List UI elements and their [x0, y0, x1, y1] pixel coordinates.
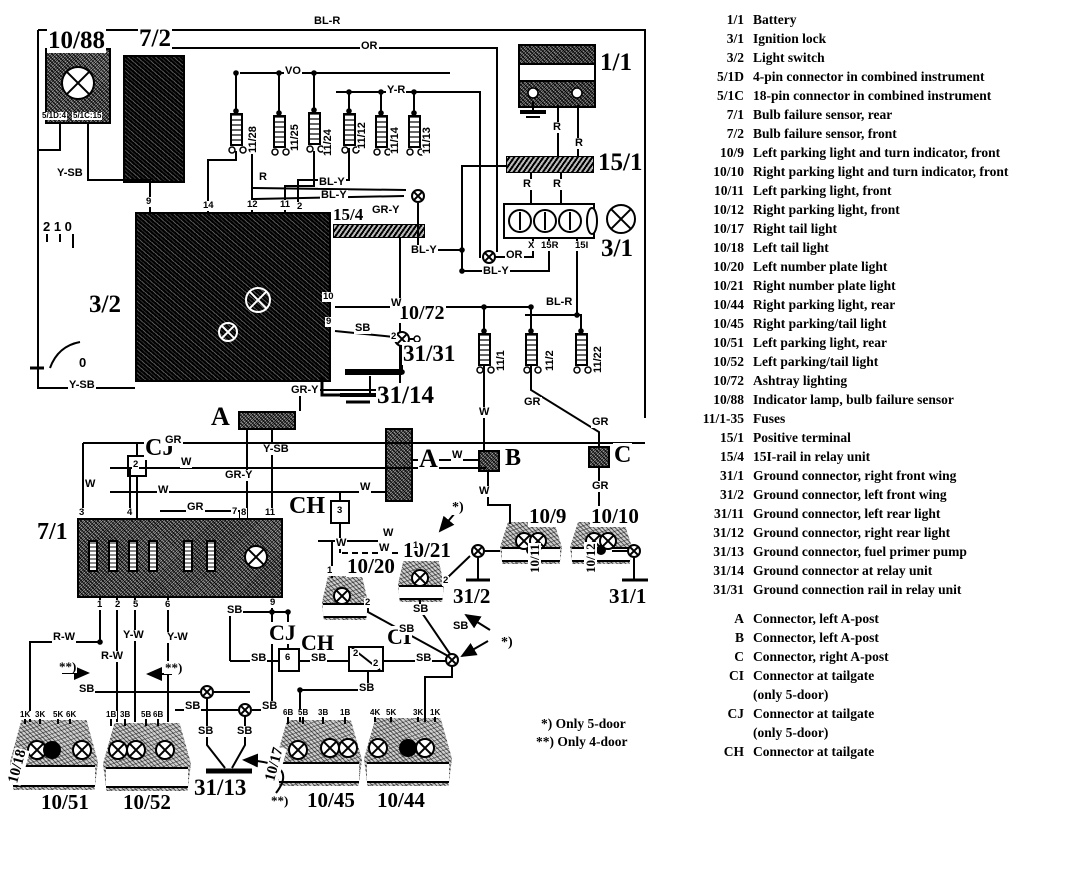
wire-label: BL-Y	[320, 190, 348, 201]
legend-desc: Connector, left A-post	[753, 628, 1066, 647]
terminal-label: 3B	[119, 711, 131, 719]
legend-row: 5/1D4-pin connector in combined instrume…	[694, 67, 1066, 86]
component-label: **)	[164, 661, 183, 674]
wire-label: OR	[360, 41, 379, 52]
fuse-symbol	[478, 333, 491, 366]
wire-label: GR	[591, 481, 610, 492]
legend-row: 10/11Left parking light, front	[694, 181, 1066, 200]
legend-code: CH	[694, 742, 753, 761]
wire-label: Y-W	[122, 630, 145, 641]
wire-label: GR-Y	[290, 385, 320, 396]
sensor-fuse-slot	[108, 540, 118, 572]
legend-code: 10/44	[694, 295, 753, 314]
terminal-label: 2	[352, 649, 359, 659]
legend-code: 31/13	[694, 542, 753, 561]
terminal-label: 7	[231, 507, 238, 517]
legend-code: 10/17	[694, 219, 753, 238]
legend-code: 10/52	[694, 352, 753, 371]
legend-desc: Bulb failure sensor, front	[753, 124, 1066, 143]
wire-label: GR-Y	[224, 470, 254, 481]
legend-code: CI	[694, 666, 753, 704]
terminal-label: 3B	[317, 709, 329, 717]
terminal-label: 6B	[282, 709, 294, 717]
legend-row: 15/415I-rail in relay unit	[694, 447, 1066, 466]
component-label: *)	[500, 636, 514, 650]
terminal-label: 2	[114, 600, 121, 610]
legend-row: 7/1Bulb failure sensor, rear	[694, 105, 1066, 124]
legend-code: 10/11	[694, 181, 753, 200]
wire-label: W	[335, 538, 347, 549]
legend-row: 31/2Ground connector, left front wing	[694, 485, 1066, 504]
wire-label: 11/13	[422, 126, 433, 155]
component-label: 31/14	[376, 383, 435, 408]
wire-label: Y-SB	[68, 380, 96, 391]
legend-desc: Ground connector, left rear light	[753, 504, 1066, 523]
wire-label: Y-W	[166, 632, 189, 643]
legend-desc: Ground connector, left front wing	[753, 485, 1066, 504]
legend-row: 10/12Right parking light, front	[694, 200, 1066, 219]
legend-code: 11/1-35	[694, 409, 753, 428]
terminal-label: 5	[132, 600, 139, 610]
legend-desc: Ground connector, right front wing	[753, 466, 1066, 485]
terminal-label: 9	[145, 197, 152, 207]
sensor-fuse-slot	[148, 540, 158, 572]
connector-b-box	[478, 450, 500, 472]
terminal-label: 1	[412, 541, 419, 551]
wire-label: R	[574, 138, 584, 149]
wire-label: 11/22	[593, 345, 604, 374]
terminal-label: 6	[284, 653, 291, 663]
component-label: 10/20	[346, 556, 396, 577]
wire-label: W	[478, 486, 490, 497]
wire-label: R	[258, 172, 268, 183]
legend-row: CConnector, right A-post	[694, 647, 1066, 666]
wire-label: SB	[197, 726, 214, 737]
component-label: 10/44	[376, 790, 426, 811]
fuse-symbol	[575, 333, 588, 366]
wire-label: BL-R	[545, 297, 573, 308]
terminal-label: 4	[126, 508, 133, 518]
component-label: **)	[58, 660, 77, 673]
ignition-lock-symbol	[503, 203, 595, 239]
legend-code: 10/12	[694, 200, 753, 219]
legend-code: 10/20	[694, 257, 753, 276]
battery-bottom-band	[520, 80, 594, 106]
terminal-label: 2	[132, 460, 139, 470]
legend-row: 10/72Ashtray lighting	[694, 371, 1066, 390]
legend-desc: Ground connection rail in relay unit	[753, 580, 1066, 599]
legend-code: 31/11	[694, 504, 753, 523]
wire-label: 11/2	[545, 349, 556, 372]
wire-label: R	[522, 179, 532, 190]
terminal-label: 3K	[34, 711, 46, 719]
terminal-label: X	[527, 241, 535, 251]
wire-label: SB	[184, 701, 201, 712]
legend-desc: 4-pin connector in combined instrument	[753, 67, 1066, 86]
legend-desc: Left parking light, front	[753, 181, 1066, 200]
legend-row: 3/2Light switch	[694, 48, 1066, 67]
wire-label: SB	[415, 653, 432, 664]
terminal-label: 1K	[19, 711, 31, 719]
wire-label: Y-SB	[262, 444, 290, 455]
terminal-label: 6	[164, 600, 171, 610]
legend-desc-2: (only 5-door)	[753, 723, 1066, 742]
legend-row: CJConnector at tailgate(only 5-door)	[694, 704, 1066, 742]
legend-desc: Ashtray lighting	[753, 371, 1066, 390]
light-switch-box	[135, 212, 331, 382]
terminal-label: 2	[372, 659, 379, 669]
component-label: A	[210, 404, 231, 430]
legend-code: 31/31	[694, 580, 753, 599]
legend-row: 10/20Left number plate light	[694, 257, 1066, 276]
component-label: 3/1	[600, 236, 634, 261]
component-label: *)	[451, 501, 465, 515]
legend-desc: Connector at tailgate(only 5-door)	[753, 704, 1066, 742]
legend-row: 10/44Right parking light, rear	[694, 295, 1066, 314]
legend-desc: 15I-rail in relay unit	[753, 447, 1066, 466]
wire-label: 2 1 0	[42, 220, 73, 233]
fuse-symbol	[230, 113, 243, 146]
legend-desc: Right number plate light	[753, 276, 1066, 295]
wire-label: 0	[78, 356, 87, 369]
wire-label: SB	[452, 621, 469, 632]
wire-label: BL-Y	[318, 177, 346, 188]
legend-code: 15/1	[694, 428, 753, 447]
legend-code: 3/2	[694, 48, 753, 67]
legend-code: CJ	[694, 704, 753, 742]
wire-label: R	[552, 122, 562, 133]
legend-row: 1/1Battery	[694, 10, 1066, 29]
bulb-failure-front-box	[123, 55, 185, 183]
component-label: 10/10	[590, 506, 640, 527]
terminal-label: 5B	[140, 711, 152, 719]
legend-code: 10/21	[694, 276, 753, 295]
wire-label: GR	[591, 417, 610, 428]
legend-desc: Positive terminal	[753, 428, 1066, 447]
legend-desc: Ground connector, fuel primer pump	[753, 542, 1066, 561]
legend-row: 7/2Bulb failure sensor, front	[694, 124, 1066, 143]
terminal-label: 3K	[412, 709, 424, 717]
legend-row: 10/45Right parking/tail light	[694, 314, 1066, 333]
lamp-10-52	[103, 723, 191, 791]
wire-label: W	[378, 543, 390, 554]
wire-label: R-W	[52, 632, 76, 643]
legend-code: 15/4	[694, 447, 753, 466]
terminal-label: 6K	[65, 711, 77, 719]
lamp-10-45	[276, 720, 362, 786]
component-label: 31/1	[608, 586, 647, 607]
connector-c-box	[588, 446, 610, 468]
legend-row: CHConnector at tailgate	[694, 742, 1066, 761]
battery-top-band	[520, 46, 594, 65]
legend-row: 31/14Ground connector at relay unit	[694, 561, 1066, 580]
legend-row: 31/31Ground connection rail in relay uni…	[694, 580, 1066, 599]
legend-code: 10/10	[694, 162, 753, 181]
legend-row: 10/88Indicator lamp, bulb failure sensor	[694, 390, 1066, 409]
terminal-label: 15R	[540, 241, 559, 251]
component-label: 10/51	[40, 792, 90, 813]
wire-label: 11/28	[248, 125, 259, 154]
legend-code: 10/45	[694, 314, 753, 333]
wire-label: SB	[354, 323, 371, 334]
terminal-label: 15I	[574, 241, 589, 251]
sensor-fuse-slot	[128, 540, 138, 572]
legend-code: 5/1C	[694, 86, 753, 105]
wire-label: SB	[226, 605, 243, 616]
terminal-label: 5K	[52, 711, 64, 719]
terminal-label: 6B	[152, 711, 164, 719]
wire-label: SB	[358, 683, 375, 694]
legend-row: 10/21Right number plate light	[694, 276, 1066, 295]
legend-desc: Right parking/tail light	[753, 314, 1066, 333]
wire-label: W	[84, 479, 96, 490]
connector-a-large-box	[385, 428, 413, 502]
wire-label: R-W	[100, 651, 124, 662]
wire-label: VO	[284, 66, 302, 77]
component-label: 10/45	[306, 790, 356, 811]
legend-desc: Right parking light, front	[753, 200, 1066, 219]
fuse-symbol	[273, 115, 286, 148]
sensor-fuse-slot	[183, 540, 193, 572]
legend-row: 10/51Left parking light, rear	[694, 333, 1066, 352]
wire-label: BL-Y	[410, 245, 438, 256]
component-label: 31/31	[402, 342, 456, 365]
wire-label: BL-Y	[482, 266, 510, 277]
terminal-label: 3	[336, 506, 343, 516]
wire-label: GR	[523, 397, 542, 408]
terminal-label: 5/1D:4	[41, 112, 67, 120]
fuse-symbol	[525, 333, 538, 366]
terminal-label: 5K	[385, 709, 397, 717]
component-label: CH	[300, 632, 335, 654]
component-label: C	[613, 443, 632, 467]
component-label: 10/72	[398, 303, 446, 323]
wire-label: W	[359, 482, 371, 493]
terminal-label: 4K	[369, 709, 381, 717]
legend-row: 31/1Ground connector, right front wing	[694, 466, 1066, 485]
legend-code: 31/1	[694, 466, 753, 485]
fuse-symbol	[308, 112, 321, 145]
legend-code: 10/88	[694, 390, 753, 409]
wiring-diagram-page: 10/887/21/115/13/13/215/410/7231/3131/14…	[0, 0, 1067, 884]
wire-label: 11/25	[290, 123, 301, 152]
legend-row: 31/13Ground connector, fuel primer pump	[694, 542, 1066, 561]
wire-label: SB	[398, 624, 415, 635]
terminal-label: 14	[202, 201, 215, 211]
lamp-10-10	[570, 522, 632, 564]
terminal-label: 5B	[297, 709, 309, 717]
legend-row: 10/9Left parking light and turn indicato…	[694, 143, 1066, 162]
wire-label: R	[552, 179, 562, 190]
wire-label: 11/14	[390, 126, 401, 155]
legend-code: 5/1D	[694, 67, 753, 86]
component-label: 7/2	[138, 26, 172, 51]
legend-row: CIConnector at tailgate(only 5-door)	[694, 666, 1066, 704]
legend-code: 31/12	[694, 523, 753, 542]
legend-desc: Connector at tailgate	[753, 742, 1066, 761]
terminal-label: 1B	[105, 711, 117, 719]
legend-row: 10/10Right parking light and turn indica…	[694, 162, 1066, 181]
terminal-label: 9	[269, 598, 276, 608]
legend-desc: Left tail light	[753, 238, 1066, 257]
legend-row: 10/17Right tail light	[694, 219, 1066, 238]
legend-code: B	[694, 628, 753, 647]
component-label: 1/1	[599, 50, 633, 75]
terminal-label: 12	[246, 200, 259, 210]
wire-label: W	[382, 528, 394, 539]
wire-label: SB	[236, 726, 253, 737]
wire-label: Y-SB	[56, 168, 84, 179]
fuse-symbol	[375, 115, 388, 148]
legend-desc: Right parking light, rear	[753, 295, 1066, 314]
legend-row: 5/1C18-pin connector in combined instrum…	[694, 86, 1066, 105]
legend-desc: Right tail light	[753, 219, 1066, 238]
terminal-label: 8	[240, 508, 247, 518]
legend-code: 3/1	[694, 29, 753, 48]
legend-desc: Light switch	[753, 48, 1066, 67]
wire-label: GR	[164, 435, 183, 446]
wiring-diagram: 10/887/21/115/13/13/215/410/7231/3131/14…	[0, 0, 700, 884]
legend-desc: Indicator lamp, bulb failure sensor	[753, 390, 1066, 409]
legend-desc-2: (only 5-door)	[753, 685, 1066, 704]
component-label: 10/12	[584, 542, 597, 574]
component-label: 10/88	[47, 28, 106, 53]
battery-symbol	[518, 44, 596, 108]
wire-label: SB	[261, 701, 278, 712]
component-label: 10/52	[122, 792, 172, 813]
legend-code: 1/1	[694, 10, 753, 29]
legend-desc: Left number plate light	[753, 257, 1066, 276]
legend-row: 31/12Ground connector, right rear light	[694, 523, 1066, 542]
legend-connectors: AConnector, left A-postBConnector, left …	[694, 609, 1066, 761]
terminal-label: 11	[279, 200, 291, 210]
wire-label: Y-R	[386, 85, 406, 96]
wire-label: OR	[505, 250, 524, 261]
wire-label: 11/1	[496, 349, 507, 372]
legend-code: 10/51	[694, 333, 753, 352]
legend-row: 3/1Ignition lock	[694, 29, 1066, 48]
component-label: 10/21	[402, 540, 452, 561]
component-label: 7/1	[36, 520, 69, 544]
terminal-label: 1	[96, 600, 103, 610]
terminal-label: 2	[442, 576, 449, 586]
legend-desc: Battery	[753, 10, 1066, 29]
legend-code: 7/2	[694, 124, 753, 143]
fuse-symbol	[408, 115, 421, 148]
legend-desc: 18-pin connector in combined instrument	[753, 86, 1066, 105]
wire-label: SB	[250, 653, 267, 664]
legend-code: 7/1	[694, 105, 753, 124]
wire-label: SB	[78, 684, 95, 695]
component-label: A	[418, 446, 439, 472]
component-label: 10/9	[528, 506, 567, 527]
wire-label: W	[180, 457, 192, 468]
legend-desc: Ground connector, right rear light	[753, 523, 1066, 542]
terminal-label: 1K	[429, 709, 441, 717]
legend-code: A	[694, 609, 753, 628]
fuse-symbol	[343, 113, 356, 146]
component-label: 31/2	[452, 586, 491, 607]
wire-label: 11/24	[323, 128, 334, 157]
terminal-label: 11	[264, 508, 276, 518]
wire-label: GR-Y	[371, 205, 401, 216]
legend-row: 10/52Left parking/tail light	[694, 352, 1066, 371]
component-label: 3/2	[88, 292, 122, 317]
component-label: B	[504, 446, 522, 470]
legend-entries: 1/1Battery3/1Ignition lock3/2Light switc…	[694, 10, 1066, 599]
legend-row: 10/18Left tail light	[694, 238, 1066, 257]
component-label: **)	[270, 794, 289, 807]
legend-desc: Connector, left A-post	[753, 609, 1066, 628]
connector-a-small-box	[238, 411, 296, 430]
wire-label: W	[157, 485, 169, 496]
wire-label: SB	[412, 604, 429, 615]
positive-terminal-bar	[506, 156, 594, 173]
terminal-label: 3	[78, 508, 85, 518]
legend-code: 31/14	[694, 561, 753, 580]
wire-label: W	[451, 450, 463, 461]
wire-label: 11/12	[357, 121, 368, 150]
component-label: 31/13	[193, 776, 247, 799]
terminal-label: 1	[326, 566, 333, 576]
terminal-label: 2	[390, 332, 397, 342]
wire-label: GR	[186, 502, 205, 513]
wire-label: W	[478, 407, 490, 418]
note-four-door: **) Only 4-door	[536, 734, 628, 750]
legend-row: 31/11Ground connector, left rear light	[694, 504, 1066, 523]
legend-desc: Bulb failure sensor, rear	[753, 105, 1066, 124]
legend-desc: Fuses	[753, 409, 1066, 428]
legend-desc: Ground connector at relay unit	[753, 561, 1066, 580]
sensor-fuse-slot	[88, 540, 98, 572]
component-label: CH	[288, 494, 326, 518]
lamp-10-20	[322, 576, 368, 620]
legend-desc: Left parking/tail light	[753, 352, 1066, 371]
legend: 1/1Battery3/1Ignition lock3/2Light switc…	[694, 10, 1066, 761]
legend-code: C	[694, 647, 753, 666]
legend-code: 31/2	[694, 485, 753, 504]
legend-row: AConnector, left A-post	[694, 609, 1066, 628]
legend-row: 15/1Positive terminal	[694, 428, 1066, 447]
terminal-label: 1B	[339, 709, 351, 717]
legend-desc: Ignition lock	[753, 29, 1066, 48]
legend-desc: Connector, right A-post	[753, 647, 1066, 666]
legend-code: 10/9	[694, 143, 753, 162]
legend-desc: Left parking light and turn indicator, f…	[753, 143, 1066, 162]
note-five-door: *) Only 5-door	[541, 716, 626, 732]
wire-label: BL-R	[313, 16, 341, 27]
legend-desc: Right parking light and turn indicator, …	[753, 162, 1066, 181]
legend-desc: Left parking light, rear	[753, 333, 1066, 352]
component-label: 15/4	[332, 206, 364, 223]
component-label: CJ	[268, 622, 297, 644]
lamp-10-44	[364, 718, 452, 786]
legend-code: 10/72	[694, 371, 753, 390]
terminal-label: 9	[325, 317, 332, 327]
legend-desc: Connector at tailgate(only 5-door)	[753, 666, 1066, 704]
terminal-label: 5/1C:15	[72, 112, 102, 120]
terminal-label: 2	[296, 202, 303, 212]
rail-15-4-bar	[333, 224, 425, 238]
terminal-label: 2	[364, 598, 371, 608]
lamp-10-21	[398, 558, 444, 602]
legend-code: 10/18	[694, 238, 753, 257]
legend-row: 11/1-35Fuses	[694, 409, 1066, 428]
component-label: 10/11	[528, 543, 541, 574]
wire-label: SB	[310, 653, 327, 664]
component-label: 15/1	[597, 150, 643, 175]
sensor-fuse-slot	[206, 540, 216, 572]
